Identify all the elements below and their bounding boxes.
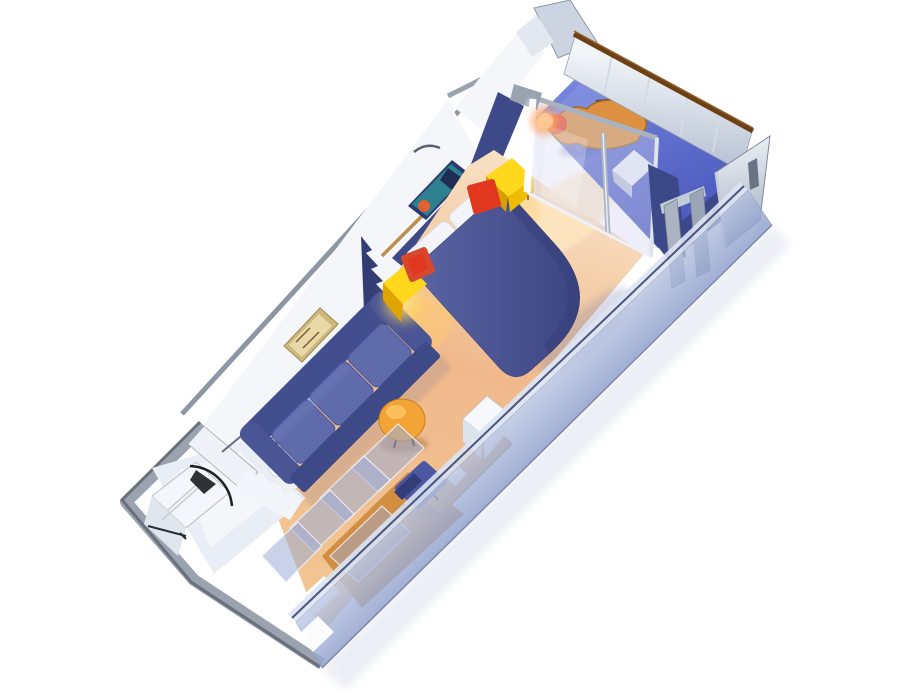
stateroom-render <box>0 0 900 700</box>
light-flare-core <box>537 113 553 129</box>
red-stool <box>470 182 498 211</box>
scene-svg <box>0 0 900 700</box>
reef-art-orange <box>418 200 430 212</box>
red-cushion-corner <box>404 250 432 279</box>
coffee-table-highlight <box>386 405 406 419</box>
